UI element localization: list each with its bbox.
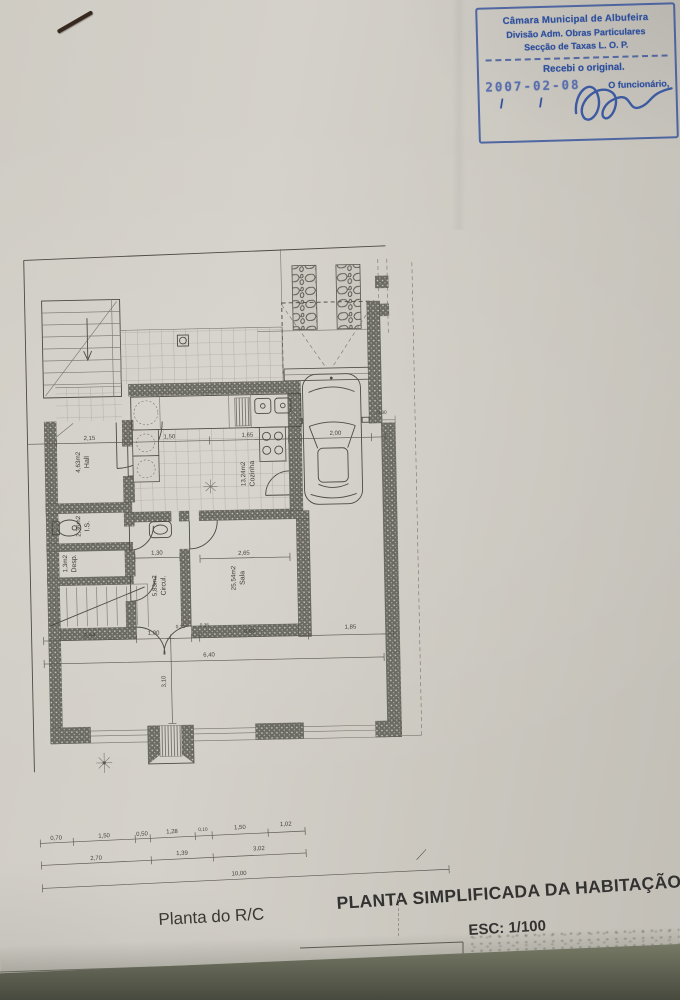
south-wall <box>51 721 403 766</box>
svg-text:2,65: 2,65 <box>238 551 250 557</box>
svg-text:I.S.: I.S. <box>84 521 91 532</box>
room-label-circul: 5,83m2 Circul. <box>151 574 167 596</box>
svg-text:1,39: 1,39 <box>176 851 189 858</box>
sink-basin <box>255 398 271 413</box>
site-right-wall <box>381 423 402 737</box>
room-label-is: 2,36m2 I.S. <box>75 515 91 537</box>
svg-text:1,02: 1,02 <box>280 822 293 829</box>
svg-text:6,40: 6,40 <box>203 652 215 658</box>
svg-text:1,00: 1,00 <box>148 631 160 637</box>
drainer <box>235 398 251 426</box>
stamp-section: Secção de Taxas L. O. P. <box>484 38 668 53</box>
car-illustration <box>294 373 371 505</box>
fold-dashed-line <box>398 898 399 936</box>
svg-text:1,65: 1,65 <box>242 433 254 439</box>
stamp-date: 2007-02-08 <box>485 77 581 95</box>
compass-symbol <box>96 753 112 773</box>
svg-text:4,63m2: 4,63m2 <box>75 451 82 473</box>
svg-text:2,70: 2,70 <box>90 856 103 863</box>
step-cheek <box>147 726 160 764</box>
svg-text:Cozinha: Cozinha <box>249 461 257 487</box>
step-cheek <box>181 725 194 763</box>
car-mirror <box>362 417 369 422</box>
staple-mark <box>57 10 94 33</box>
svg-text:0,80: 0,80 <box>244 629 256 635</box>
scanned-floor-plan-document: Câmara Municipal de Albufeira Divisão Ad… <box>0 0 680 1000</box>
dimension-label: 0,30 <box>377 410 387 416</box>
room-label-hall: 4,63m2 Hall <box>75 451 91 473</box>
stamp-authority: Câmara Municipal de Albufeira <box>483 11 667 27</box>
svg-text:1,85: 1,85 <box>345 625 357 631</box>
svg-text:0,35: 0,35 <box>200 623 210 629</box>
paper-crease <box>452 0 466 230</box>
svg-text:1,28: 1,28 <box>166 829 179 836</box>
entry-steps <box>159 725 182 756</box>
svg-text:1,3m2: 1,3m2 <box>62 554 69 572</box>
stove <box>259 427 286 462</box>
svg-text:2,36m2: 2,36m2 <box>75 515 82 537</box>
svg-text:2,44: 2,44 <box>84 633 96 639</box>
svg-text:1,50: 1,50 <box>98 833 111 840</box>
cobble-strip <box>292 265 317 329</box>
garage-right-wall <box>367 301 383 423</box>
svg-text:1,50: 1,50 <box>234 825 247 832</box>
svg-text:Desp.: Desp. <box>71 554 78 572</box>
svg-text:0,50: 0,50 <box>136 831 149 838</box>
svg-text:2,15: 2,15 <box>84 436 96 442</box>
room-label-desp: 1,3m2 Desp. <box>62 554 78 573</box>
svg-text:1,30: 1,30 <box>151 551 163 557</box>
terrace-curtain-door <box>136 626 192 655</box>
cobble-strip <box>336 264 361 328</box>
svg-text:25,54m2: 25,54m2 <box>230 565 238 590</box>
svg-text:0,30: 0,30 <box>176 624 186 630</box>
municipal-stamp: Câmara Municipal de Albufeira Divisão Ad… <box>475 2 679 144</box>
svg-text:1,50: 1,50 <box>164 434 176 440</box>
svg-text:10,00: 10,00 <box>231 871 247 878</box>
exterior-staircase <box>42 299 122 398</box>
svg-text:5,83m2: 5,83m2 <box>151 575 158 597</box>
washbasin <box>149 521 171 537</box>
svg-text:Hall: Hall <box>84 456 91 469</box>
plan-caption: Planta do R/C <box>158 904 265 930</box>
dimension-rows: 0,70 1,50 0,50 1,28 0,10 1,50 1,02 2,70 … <box>40 814 449 892</box>
svg-text:2,00: 2,00 <box>330 431 342 437</box>
signature <box>571 64 680 139</box>
svg-text:3,02: 3,02 <box>253 846 266 853</box>
svg-text:0,70: 0,70 <box>50 835 63 842</box>
svg-text:3,10: 3,10 <box>161 675 167 687</box>
svg-text:Circul.: Circul. <box>160 575 167 595</box>
kitchen-fixtures <box>131 394 303 513</box>
dimension-line-interior: 1,30 2,65 <box>135 548 290 564</box>
svg-text:0,10: 0,10 <box>198 827 208 833</box>
svg-text:Sala: Sala <box>239 571 246 585</box>
floor-plan: 0,30 <box>15 218 459 899</box>
svg-text:13,24m2: 13,24m2 <box>240 461 248 486</box>
room-label-sala: 25,54m2 Sala <box>230 565 247 590</box>
